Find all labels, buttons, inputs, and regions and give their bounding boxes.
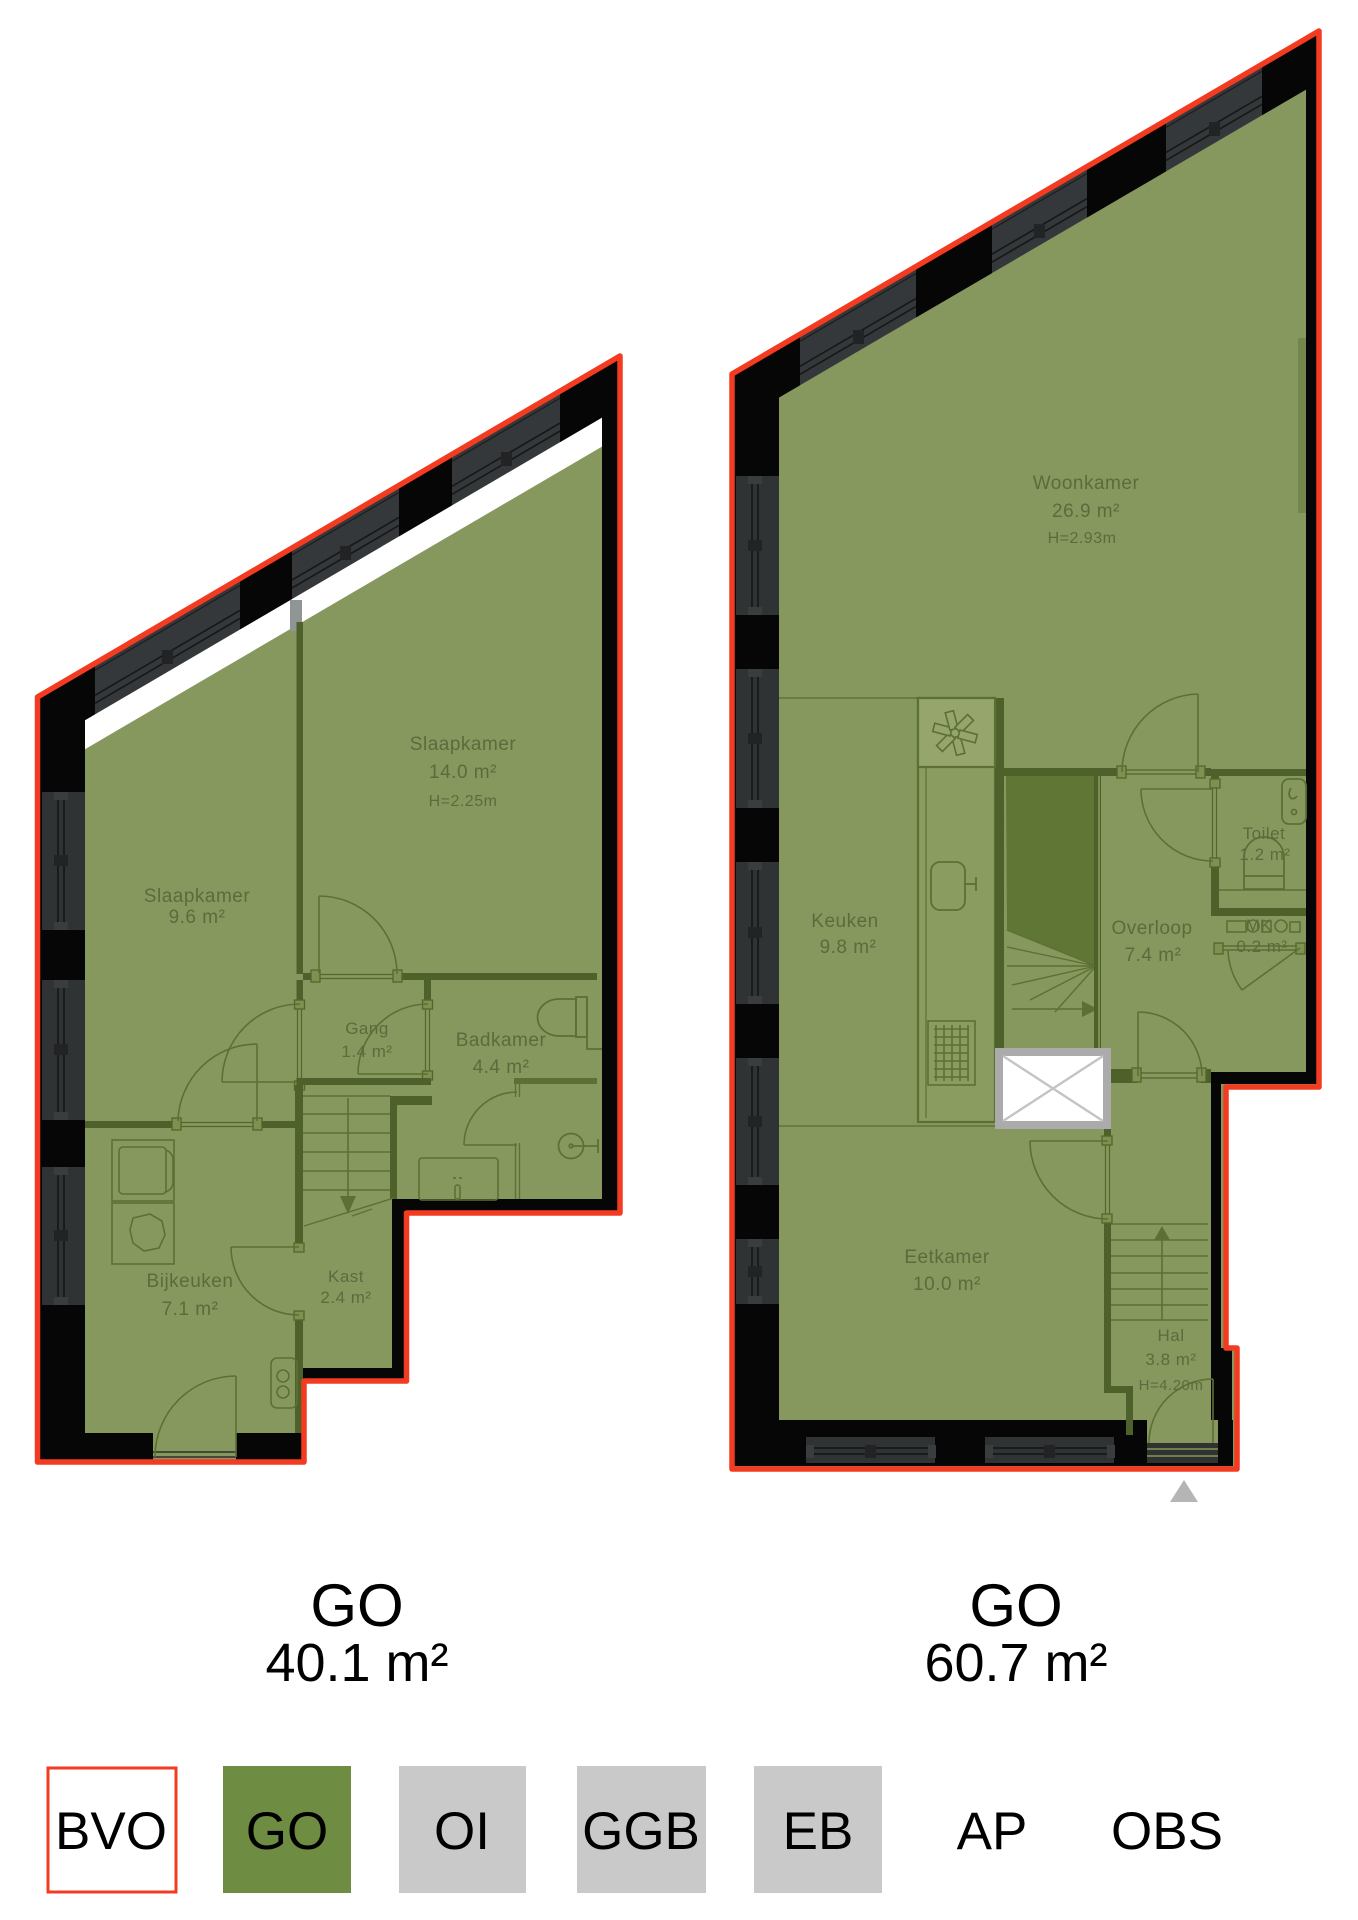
svg-text:OI: OI bbox=[434, 1802, 490, 1861]
svg-text:Woonkamer: Woonkamer bbox=[1033, 473, 1140, 494]
svg-text:Slaapkamer: Slaapkamer bbox=[144, 886, 251, 907]
svg-text:Slaapkamer: Slaapkamer bbox=[410, 734, 517, 755]
svg-text:MK: MK bbox=[1246, 916, 1273, 935]
svg-text:GO: GO bbox=[246, 1802, 328, 1861]
svg-text:Gang: Gang bbox=[345, 1019, 389, 1038]
svg-text:10.0 m²: 10.0 m² bbox=[913, 1274, 981, 1295]
svg-text:9.8 m²: 9.8 m² bbox=[820, 937, 877, 958]
svg-text:GO: GO bbox=[969, 1572, 1062, 1639]
svg-text:H=4.20m: H=4.20m bbox=[1139, 1377, 1204, 1394]
svg-text:Bijkeuken: Bijkeuken bbox=[147, 1271, 234, 1292]
svg-text:Overloop: Overloop bbox=[1111, 918, 1192, 939]
svg-text:3.8 m²: 3.8 m² bbox=[1145, 1350, 1196, 1369]
svg-text:40.1 m²: 40.1 m² bbox=[265, 1633, 448, 1693]
svg-text:GGB: GGB bbox=[582, 1802, 700, 1861]
svg-text:GO: GO bbox=[310, 1572, 403, 1639]
svg-text:1.4 m²: 1.4 m² bbox=[341, 1042, 392, 1061]
svg-text:0.2 m²: 0.2 m² bbox=[1236, 937, 1287, 956]
svg-text:Toilet: Toilet bbox=[1243, 824, 1286, 843]
svg-text:Eetkamer: Eetkamer bbox=[904, 1247, 989, 1268]
svg-text:60.7 m²: 60.7 m² bbox=[924, 1633, 1107, 1693]
svg-text:Hal: Hal bbox=[1157, 1326, 1184, 1345]
svg-text:7.1 m²: 7.1 m² bbox=[162, 1299, 219, 1320]
svg-text:Keuken: Keuken bbox=[811, 911, 878, 932]
svg-text:EB: EB bbox=[783, 1802, 854, 1861]
svg-text:26.9 m²: 26.9 m² bbox=[1052, 501, 1120, 522]
svg-text:Kast: Kast bbox=[328, 1267, 364, 1286]
svg-text:4.4 m²: 4.4 m² bbox=[473, 1057, 530, 1078]
svg-text:7.4 m²: 7.4 m² bbox=[1125, 945, 1182, 966]
svg-text:H=2.93m: H=2.93m bbox=[1048, 530, 1117, 547]
svg-text:BVO: BVO bbox=[55, 1802, 167, 1861]
svg-text:1.2 m²: 1.2 m² bbox=[1239, 845, 1290, 864]
svg-text:9.6 m²: 9.6 m² bbox=[169, 907, 226, 928]
svg-text:AP: AP bbox=[957, 1802, 1028, 1861]
svg-text:2.4 m²: 2.4 m² bbox=[320, 1288, 371, 1307]
svg-text:H=2.25m: H=2.25m bbox=[429, 793, 498, 810]
svg-text:Badkamer: Badkamer bbox=[456, 1030, 547, 1051]
svg-text:14.0 m²: 14.0 m² bbox=[429, 762, 497, 783]
svg-text:OBS: OBS bbox=[1111, 1802, 1223, 1861]
